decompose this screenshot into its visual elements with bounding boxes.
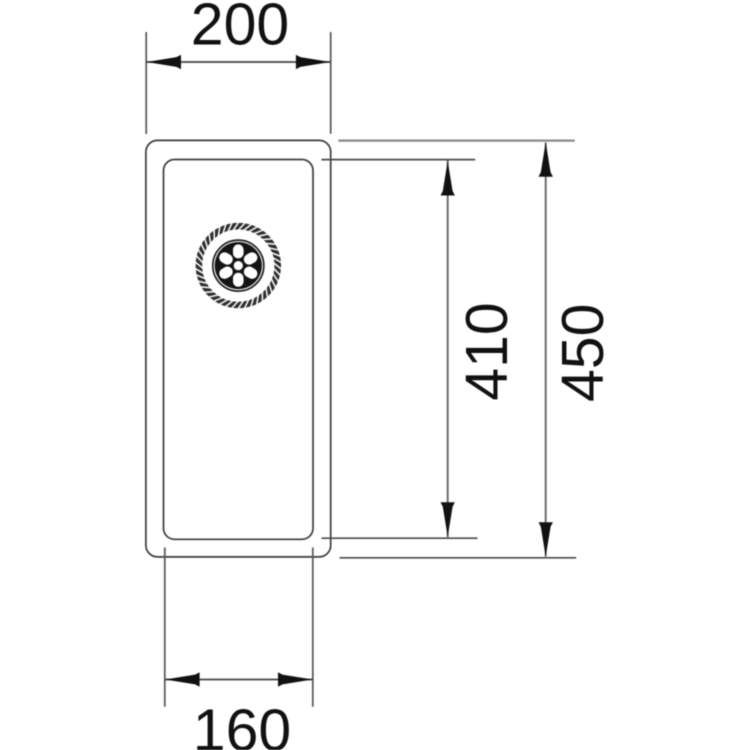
- svg-text:200: 200: [191, 0, 289, 58]
- svg-text:160: 160: [193, 698, 291, 750]
- svg-text:450: 450: [550, 304, 616, 402]
- svg-text:410: 410: [454, 302, 520, 400]
